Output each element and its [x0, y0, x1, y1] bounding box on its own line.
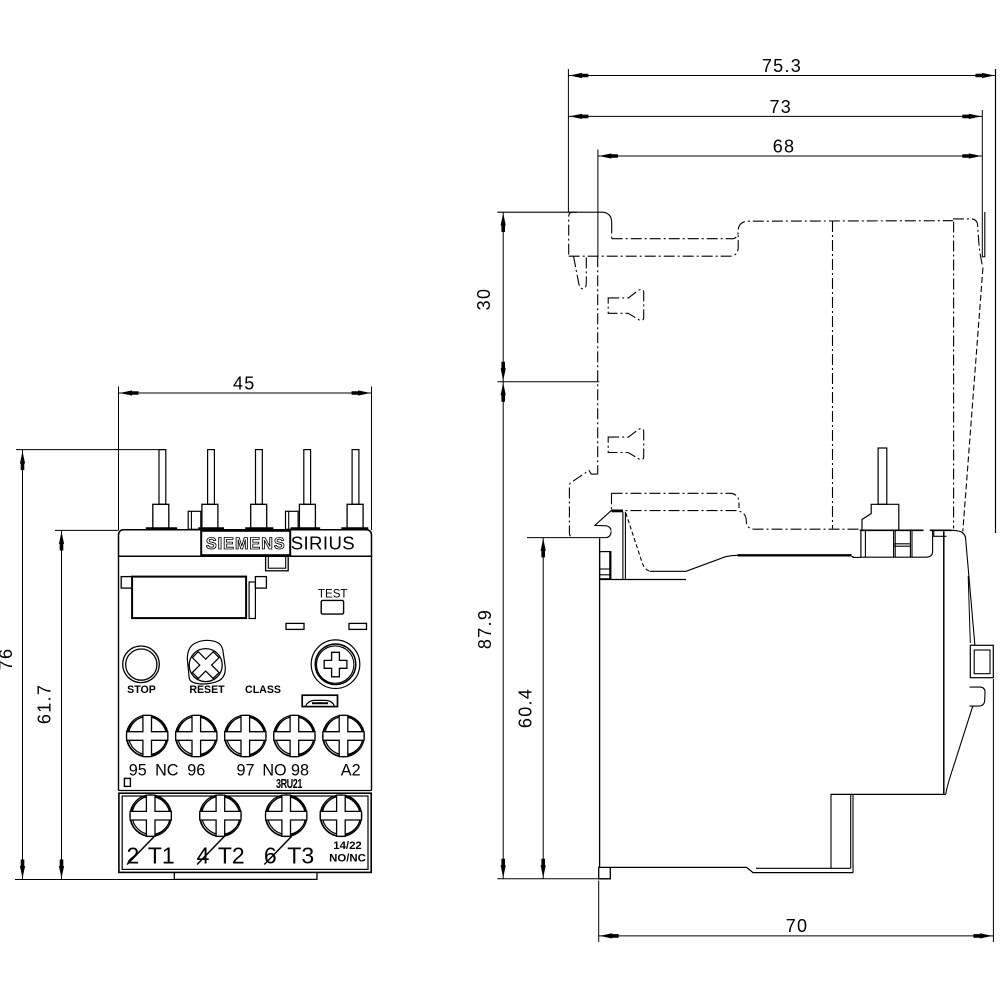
svg-text:T3: T3	[287, 843, 314, 869]
svg-text:T1: T1	[148, 843, 175, 869]
svg-text:STOP: STOP	[127, 684, 156, 696]
svg-text:73: 73	[769, 97, 792, 117]
svg-text:4: 4	[197, 843, 210, 869]
svg-text:75.3: 75.3	[762, 56, 802, 76]
svg-text:76: 76	[0, 648, 16, 671]
svg-text:SIRIUS: SIRIUS	[291, 532, 355, 553]
svg-text:SIEMENS: SIEMENS	[206, 535, 286, 553]
svg-text:TEST: TEST	[318, 587, 348, 600]
svg-text:45: 45	[233, 374, 256, 394]
svg-text:NO/NC: NO/NC	[329, 853, 366, 865]
svg-text:30: 30	[474, 288, 494, 311]
svg-text:87.9: 87.9	[475, 609, 495, 649]
svg-text:60.4: 60.4	[516, 688, 536, 728]
svg-text:3RU21: 3RU21	[276, 777, 302, 791]
svg-text:70: 70	[786, 916, 809, 936]
svg-text:T2: T2	[218, 843, 245, 869]
svg-text:95: 95	[129, 761, 147, 779]
svg-text:68: 68	[773, 137, 796, 157]
svg-text:6: 6	[264, 843, 277, 869]
svg-text:97: 97	[236, 761, 254, 779]
svg-text:A2: A2	[341, 761, 361, 779]
svg-text:2: 2	[127, 843, 140, 869]
svg-text:CLASS: CLASS	[245, 684, 281, 696]
svg-text:96: 96	[187, 761, 205, 779]
svg-text:14/22: 14/22	[333, 840, 362, 852]
svg-text:61.7: 61.7	[35, 684, 55, 724]
svg-text:RESET: RESET	[189, 684, 225, 696]
svg-text:NC: NC	[155, 761, 179, 779]
